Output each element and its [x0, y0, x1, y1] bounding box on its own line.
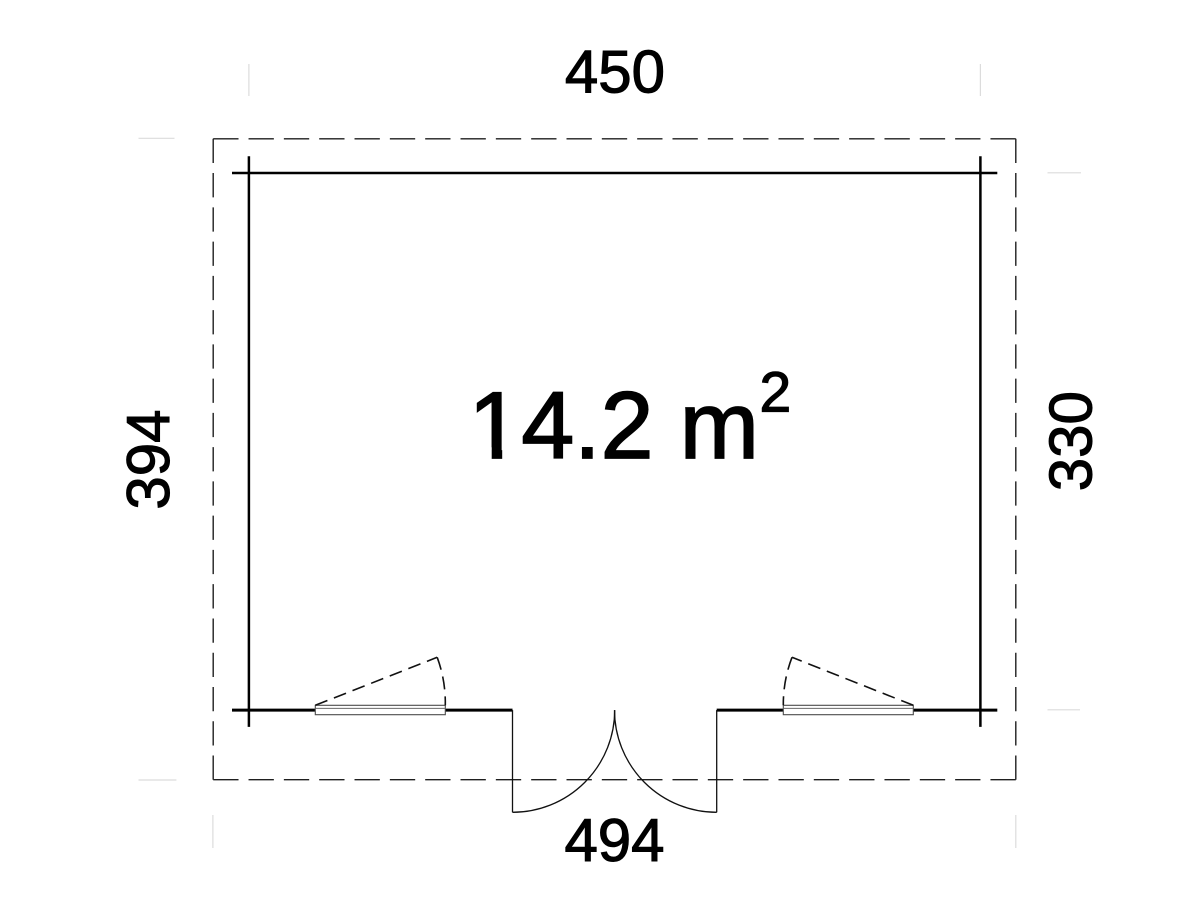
svg-text:450: 450 — [565, 39, 665, 106]
svg-text:14.2 m: 14.2 m — [469, 373, 759, 479]
svg-text:330: 330 — [1038, 391, 1105, 491]
svg-text:494: 494 — [564, 807, 664, 874]
svg-text:2: 2 — [760, 361, 792, 425]
svg-text:394: 394 — [115, 410, 182, 510]
